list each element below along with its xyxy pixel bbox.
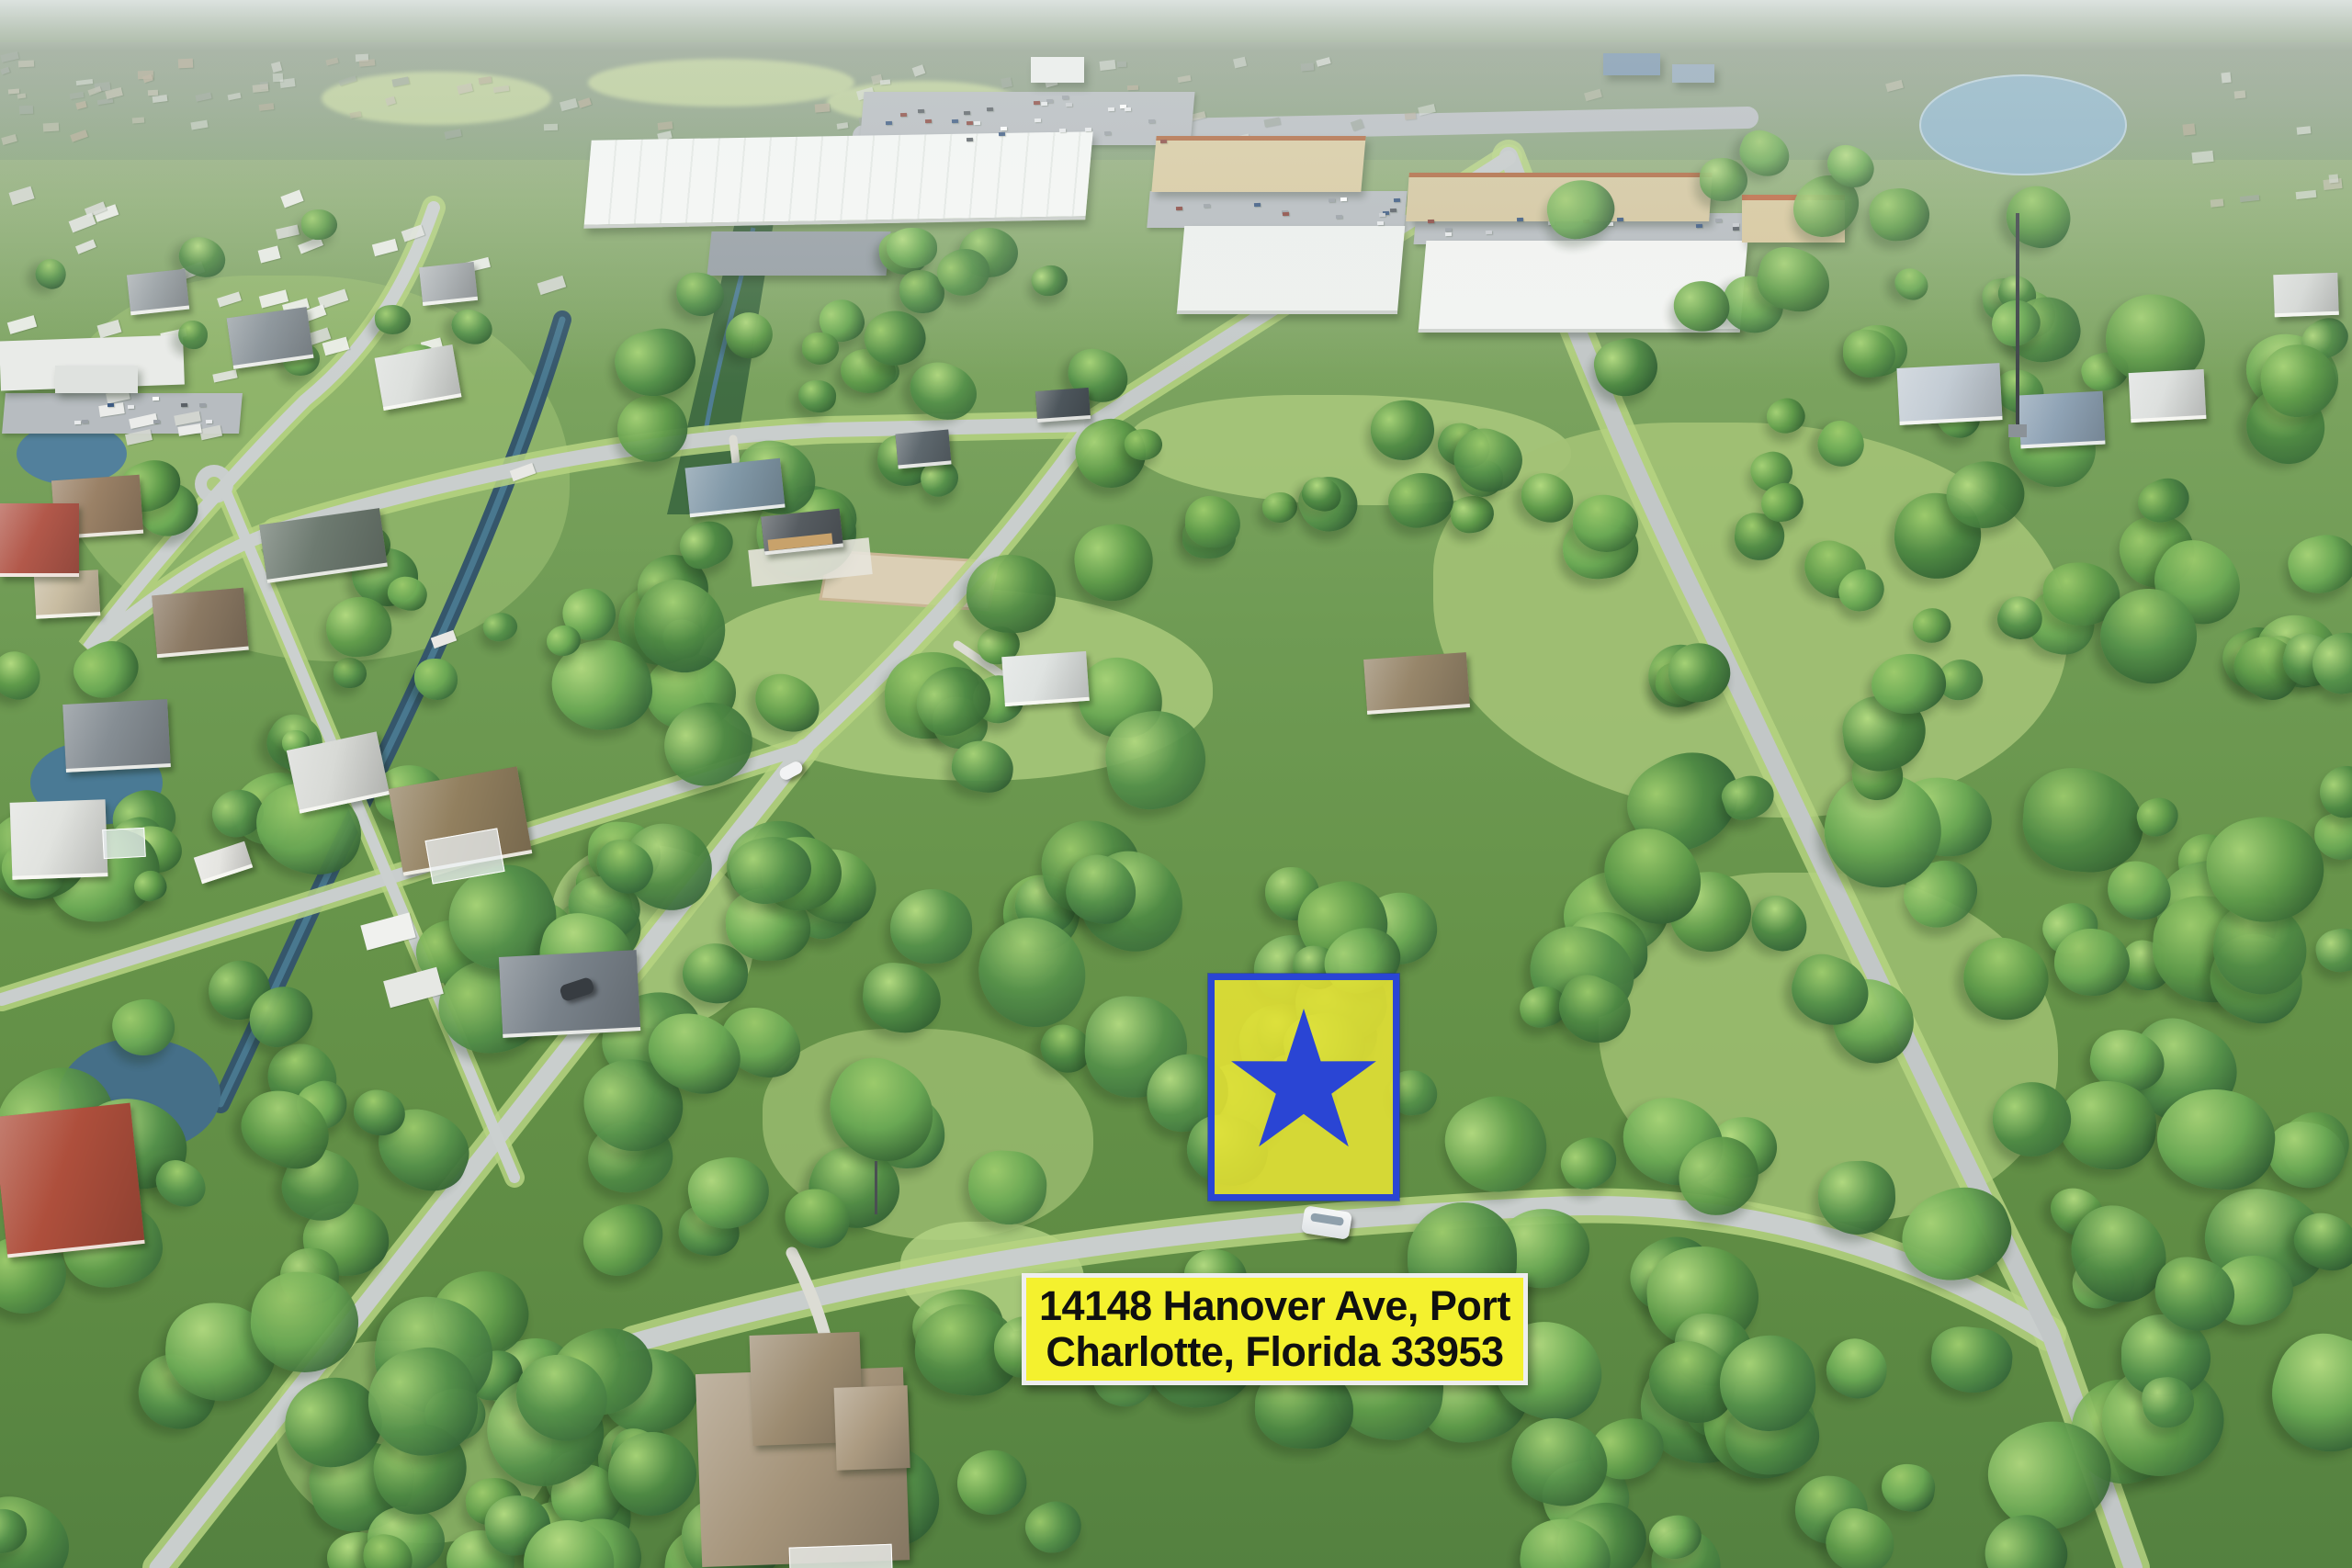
tree-canopy [573, 1192, 674, 1288]
tree-canopy [1483, 1308, 1615, 1433]
tree-canopy [817, 1475, 918, 1568]
white-building [55, 366, 138, 393]
tree-canopy [2113, 1006, 2251, 1140]
tree-canopy [1560, 513, 1642, 582]
tree-canopy [1984, 291, 2047, 354]
tree-canopy [1998, 178, 2078, 256]
parked-car-speck [1041, 101, 1047, 105]
tree-canopy [884, 651, 983, 740]
tree-canopy [1645, 1524, 1725, 1568]
tree-canopy [1383, 466, 1459, 536]
tree-canopy [1661, 635, 1737, 709]
tree-canopy [1431, 415, 1497, 476]
parked-car-speck [1062, 96, 1069, 99]
distant-building-speck [87, 86, 101, 96]
tree-canopy [972, 619, 1025, 671]
tree-canopy [1667, 869, 1754, 954]
tree-canopy [2312, 758, 2352, 825]
tree-canopy [1588, 813, 1719, 940]
tree-canopy [1444, 419, 1531, 502]
tree-canopy [176, 319, 209, 351]
mobile-home [85, 201, 107, 218]
tree-canopy [608, 321, 702, 404]
distant-building-speck [43, 123, 60, 132]
tree-canopy [2278, 628, 2343, 693]
tree-canopy [598, 1422, 673, 1497]
tree-canopy [352, 547, 418, 606]
tree-canopy [2257, 341, 2341, 422]
tree-canopy [1273, 985, 1387, 1089]
house-roof [10, 799, 108, 880]
driveway-stub [957, 645, 1006, 678]
tree-canopy [0, 807, 93, 906]
road-west-connector [2, 748, 805, 999]
mobile-home [463, 257, 491, 273]
tree-canopy [1668, 1126, 1770, 1226]
tree-canopy [1291, 943, 1341, 990]
mobile-home [217, 291, 242, 307]
parked-car-speck [1282, 209, 1288, 213]
tree-canopy [384, 572, 431, 614]
distant-building-speck [392, 76, 410, 86]
tree-canopy [1504, 1409, 1617, 1515]
parked-car-speck [1336, 215, 1342, 219]
roads [2, 118, 2133, 1568]
house-roof [2018, 391, 2106, 449]
tree-canopy [1298, 473, 1345, 515]
distant-building-speck [279, 78, 295, 88]
tree-canopy [2150, 893, 2269, 1005]
parked-car-speck [1001, 127, 1007, 130]
tree-canopy [1932, 654, 1987, 706]
distant-roof-speck [2221, 72, 2231, 83]
tree-canopy [246, 773, 372, 886]
parked-car-speck [206, 420, 212, 423]
house-roof [375, 344, 462, 411]
tree-canopy [572, 1044, 695, 1165]
distant-building-speck [1099, 60, 1115, 70]
parked-car-speck [1617, 218, 1623, 221]
distant-roof-speck [2183, 123, 2196, 135]
pond [17, 423, 127, 485]
house-roof [761, 509, 843, 556]
tree-canopy [1284, 1068, 1344, 1122]
road-long-diagonal [1509, 156, 2133, 1568]
tree-canopy [1554, 1129, 1625, 1197]
tree-canopy [322, 593, 394, 660]
construction-wood-wall [768, 533, 833, 550]
parked-car-speck [1035, 118, 1041, 122]
mobile-home [129, 413, 157, 429]
tree-canopy [513, 1508, 625, 1568]
tree-canopy [587, 975, 717, 1097]
tree-canopy [2023, 584, 2101, 661]
tree-canopy [342, 523, 393, 569]
tree-canopy [2057, 1079, 2158, 1172]
tree-canopy [480, 608, 520, 646]
tree-canopy [1782, 946, 1878, 1035]
mobile-home [106, 389, 130, 404]
parking-lot [859, 92, 1194, 145]
golf-fairway [322, 72, 551, 125]
tree-canopy [2213, 618, 2297, 700]
tree-canopy [1063, 344, 1134, 408]
distant-building-speck [1116, 62, 1125, 68]
parked-car-speck [82, 420, 88, 423]
tree-canopy [1193, 1057, 1293, 1155]
tree-canopy [997, 868, 1087, 958]
tree-canopy [2280, 353, 2337, 406]
mobile-home [322, 337, 349, 356]
parked-car-speck [1160, 140, 1167, 143]
parked-car-speck [925, 119, 932, 123]
tree-canopy [1182, 513, 1237, 558]
parked-car-speck [1283, 212, 1289, 216]
tree-canopy [1082, 530, 1147, 591]
tree-canopy [130, 472, 207, 546]
tree-canopy [932, 696, 989, 750]
distant-building-speck [657, 130, 672, 141]
mobile-home [301, 304, 326, 321]
parked-car-speck [1125, 107, 1131, 111]
distant-building-speck [0, 51, 18, 62]
tree-canopy [1035, 814, 1147, 919]
mobile-home [213, 369, 238, 382]
tree-canopy [538, 1314, 665, 1431]
bigbox-roof [1177, 226, 1405, 314]
tree-canopy [1366, 396, 1439, 465]
tree-canopy [780, 859, 871, 949]
tree-canopy [1791, 1472, 1871, 1549]
tree-canopy [247, 1268, 363, 1377]
tree-canopy [2099, 288, 2212, 393]
tree-canopy [2269, 1100, 2352, 1190]
tree-canopy [1746, 446, 1797, 497]
tree-canopy [1028, 261, 1072, 301]
tree-canopy [724, 886, 811, 963]
distant-building-speck [76, 79, 94, 86]
distant-building-speck [493, 85, 510, 93]
tree-canopy [1818, 1501, 1903, 1568]
parked-car-speck [1583, 220, 1589, 223]
tree-canopy [370, 761, 448, 827]
distant-building-speck [17, 94, 27, 99]
tree-canopy [2078, 347, 2133, 396]
tree-canopy [960, 901, 1104, 1043]
blue-roof-building [1603, 53, 1660, 75]
distant-building-speck [338, 76, 356, 87]
distant-building-speck [359, 59, 376, 66]
parked-car [777, 760, 805, 783]
house-roof [1035, 388, 1091, 423]
tree-canopy [646, 654, 737, 732]
house-roof [389, 766, 533, 875]
distant-building-speck [326, 57, 339, 65]
parked-car-speck [1428, 220, 1434, 223]
tree-canopy [771, 1392, 917, 1530]
parked-car-speck [886, 121, 892, 125]
tree-canopy [2174, 829, 2239, 894]
tree-canopy [1939, 450, 2032, 537]
parked-car-speck [153, 397, 159, 400]
parked-car-speck [1066, 103, 1072, 107]
large-house [695, 1330, 916, 1568]
tree-canopy [1250, 931, 1333, 1009]
tree-canopy [149, 1154, 214, 1215]
tree-canopy [742, 471, 870, 595]
tree-canopy [1182, 1247, 1248, 1305]
canal-water-light [220, 320, 562, 1104]
tree-canopy [2294, 310, 2352, 367]
tree-canopy [1638, 636, 1720, 717]
house-roof [1363, 652, 1470, 715]
grass-clearing [763, 1029, 1093, 1240]
tree-canopy [1261, 1047, 1325, 1107]
tree-canopy [532, 905, 639, 1000]
tree-canopy [365, 1416, 476, 1524]
tree-canopy [1516, 982, 1571, 1032]
tree-canopy [1556, 861, 1677, 966]
tree-canopy [1890, 263, 1934, 305]
distant-building-speck [138, 71, 153, 80]
tree-canopy [2235, 375, 2339, 477]
mobile-home [259, 290, 288, 309]
distant-building-speck [259, 103, 274, 111]
parked-car-speck [198, 403, 205, 407]
tree-canopy [887, 227, 938, 268]
tree-canopy [1077, 656, 1164, 739]
tree-canopy [1254, 1364, 1354, 1450]
tree-canopy [783, 480, 864, 557]
tree-canopy [1070, 519, 1159, 605]
distant-building-speck [932, 92, 944, 98]
tree-canopy [418, 1379, 493, 1451]
distant-building-speck [273, 73, 284, 83]
address-line-2: Charlotte, Florida 33953 [1039, 1329, 1510, 1375]
distant-building-speck [1045, 80, 1057, 88]
cul-de-sac-island [207, 477, 221, 491]
tree-canopy [877, 229, 931, 276]
strip-mall [1151, 136, 1365, 192]
house-roof [2129, 369, 2207, 423]
distant-building-speck [911, 64, 924, 76]
cell-tower-base [2008, 424, 2027, 437]
warehouse-roof [583, 131, 1092, 228]
parked-car-speck [1034, 101, 1040, 105]
tree-canopy [1011, 873, 1080, 938]
tree-canopy [2223, 626, 2311, 710]
tree-canopy [1068, 411, 1154, 496]
distant-roof-speck [2324, 178, 2343, 190]
tree-canopy [905, 1279, 1012, 1375]
tree-canopy [463, 1474, 525, 1527]
tree-canopy [1756, 478, 1809, 528]
tree-canopy [1614, 1089, 1732, 1195]
tree-canopy [673, 512, 740, 575]
distant-building-speck [871, 74, 882, 85]
house-roof [259, 508, 388, 583]
tree-canopy [1290, 873, 1396, 976]
tree-canopy [609, 387, 695, 470]
distant-building-speck [1028, 115, 1040, 124]
mobile-home [298, 237, 323, 254]
road-front-of-lot [634, 1205, 2049, 1343]
tree-canopy [127, 823, 186, 874]
tree-canopy [444, 1528, 516, 1568]
parked-car-speck [1517, 218, 1523, 221]
mobile-home [178, 262, 205, 281]
house-roof [34, 570, 101, 619]
mobile-home [174, 412, 200, 426]
distant-building-speck [1190, 111, 1205, 120]
parked-car-speck [1607, 222, 1613, 226]
pool-screen-enclosure [102, 828, 146, 859]
tree-canopy [1122, 426, 1164, 462]
distant-building-speck [1418, 104, 1436, 116]
tree-canopy [1996, 391, 2109, 500]
tree-canopy [620, 568, 741, 686]
distant-building-speck [70, 130, 87, 141]
road-connector [805, 424, 1091, 748]
tree-canopy [366, 1505, 446, 1568]
grass-clearing [551, 845, 753, 1029]
tree-canopy [546, 633, 657, 736]
cleared-sand-lot [820, 551, 998, 610]
tree-canopy [1670, 276, 1734, 336]
tree-canopy [273, 1364, 394, 1481]
distant-building-speck [153, 95, 168, 103]
parked-car-speck [1254, 203, 1261, 207]
tree-canopy [2199, 807, 2333, 932]
house-roof [127, 269, 189, 315]
tree-canopy [1638, 1348, 1762, 1466]
blue-roof-building [1672, 64, 1714, 83]
distant-building-speck [19, 106, 33, 114]
lot-marker-underlay [1208, 974, 1399, 1201]
tree-canopy [478, 1329, 583, 1425]
tree-canopy [562, 870, 647, 945]
tree-canopy [1869, 650, 1949, 717]
tree-canopy [130, 866, 170, 906]
tree-canopy [367, 1290, 501, 1421]
tree-canopy [2001, 291, 2086, 369]
tree-canopy [1589, 333, 1664, 402]
distant-building-speck [95, 82, 111, 92]
tree-canopy [424, 1260, 539, 1370]
property-marker [1208, 974, 1399, 1201]
tree-canopy [650, 687, 767, 800]
house-roof [0, 503, 79, 577]
tree-canopy [2054, 1361, 2194, 1501]
grass-clearing [900, 1222, 1084, 1332]
tree-canopy [1820, 970, 1925, 1074]
tree-canopy [482, 888, 588, 994]
parked-car-speck [967, 121, 973, 125]
distant-roof-speck [2191, 151, 2213, 164]
tree-canopy [607, 1431, 697, 1516]
tree-canopy [231, 1077, 342, 1180]
tree-canopy [0, 1050, 134, 1201]
parked-car-speck [1733, 222, 1739, 226]
distant-building-speck [1, 134, 17, 145]
tree-canopy [2053, 1190, 2183, 1317]
tree-canopy [2105, 858, 2175, 924]
mobile-home [537, 276, 565, 295]
tree-canopy [66, 631, 148, 708]
tree-canopy [1408, 1201, 1518, 1307]
tree-canopy [2132, 793, 2182, 840]
distant-building-speck [1236, 133, 1250, 144]
white-building [0, 335, 185, 391]
tree-canopy [1894, 848, 1989, 940]
parked-car-speck [1733, 227, 1739, 231]
mobile-home [94, 204, 119, 222]
tree-canopy [1734, 124, 1797, 183]
parked-car-speck [1390, 209, 1396, 212]
tree-canopy [661, 1521, 761, 1568]
parked-car-speck [1204, 204, 1210, 208]
distant-building-speck [560, 98, 578, 111]
tree-canopy [259, 1035, 345, 1121]
tree-canopy [2036, 894, 2107, 962]
tree-canopy [2237, 326, 2346, 423]
large-house-roof-wing [750, 1332, 864, 1446]
distant-building-speck [1178, 75, 1192, 83]
golf-fairway [827, 81, 1020, 123]
tree-canopy [859, 353, 901, 389]
tan-building [1742, 195, 1845, 243]
tree-canopy [569, 855, 631, 915]
mobile-home [68, 212, 95, 231]
tree-canopy [814, 293, 869, 347]
parked-car-speck [1108, 107, 1114, 110]
tree-canopy [1265, 866, 1321, 920]
star-icon [1215, 980, 1393, 1194]
tree-canopy [1635, 1327, 1749, 1437]
tree-canopy [273, 1139, 368, 1232]
tree-canopy [614, 581, 707, 670]
tree-canopy [327, 1532, 392, 1568]
tree-canopy [638, 1001, 752, 1105]
house-roof [499, 950, 640, 1038]
parked-car-speck [1394, 198, 1400, 202]
tree-canopy [1816, 1159, 1896, 1236]
tree-canopy [2148, 1251, 2241, 1337]
boat-dock [431, 630, 458, 649]
parked-car-speck [128, 405, 134, 409]
house-roof [227, 307, 314, 369]
address-label: 14148 Hanover Ave, Port Charlotte, Flori… [1022, 1273, 1528, 1385]
house-roof [2273, 273, 2339, 317]
tree-canopy [1849, 747, 1905, 802]
tree-canopy [657, 614, 709, 663]
boat-dock [319, 788, 345, 807]
tree-canopy [1567, 489, 1644, 558]
distant-building-speck [658, 121, 673, 130]
tree-canopy [1713, 267, 1791, 343]
white-car [1301, 1205, 1352, 1240]
tree-canopy [1082, 994, 1190, 1100]
parked-car-speck [1696, 224, 1702, 228]
tree-canopy [948, 1440, 1034, 1524]
tree-canopy [860, 960, 944, 1036]
tree-canopy [1988, 362, 2050, 420]
tree-canopy [1431, 1080, 1560, 1209]
tree-canopy [2113, 935, 2177, 998]
tree-canopy [2263, 1118, 2349, 1194]
tree-canopy [348, 1085, 410, 1142]
tree-canopy [361, 1451, 414, 1500]
